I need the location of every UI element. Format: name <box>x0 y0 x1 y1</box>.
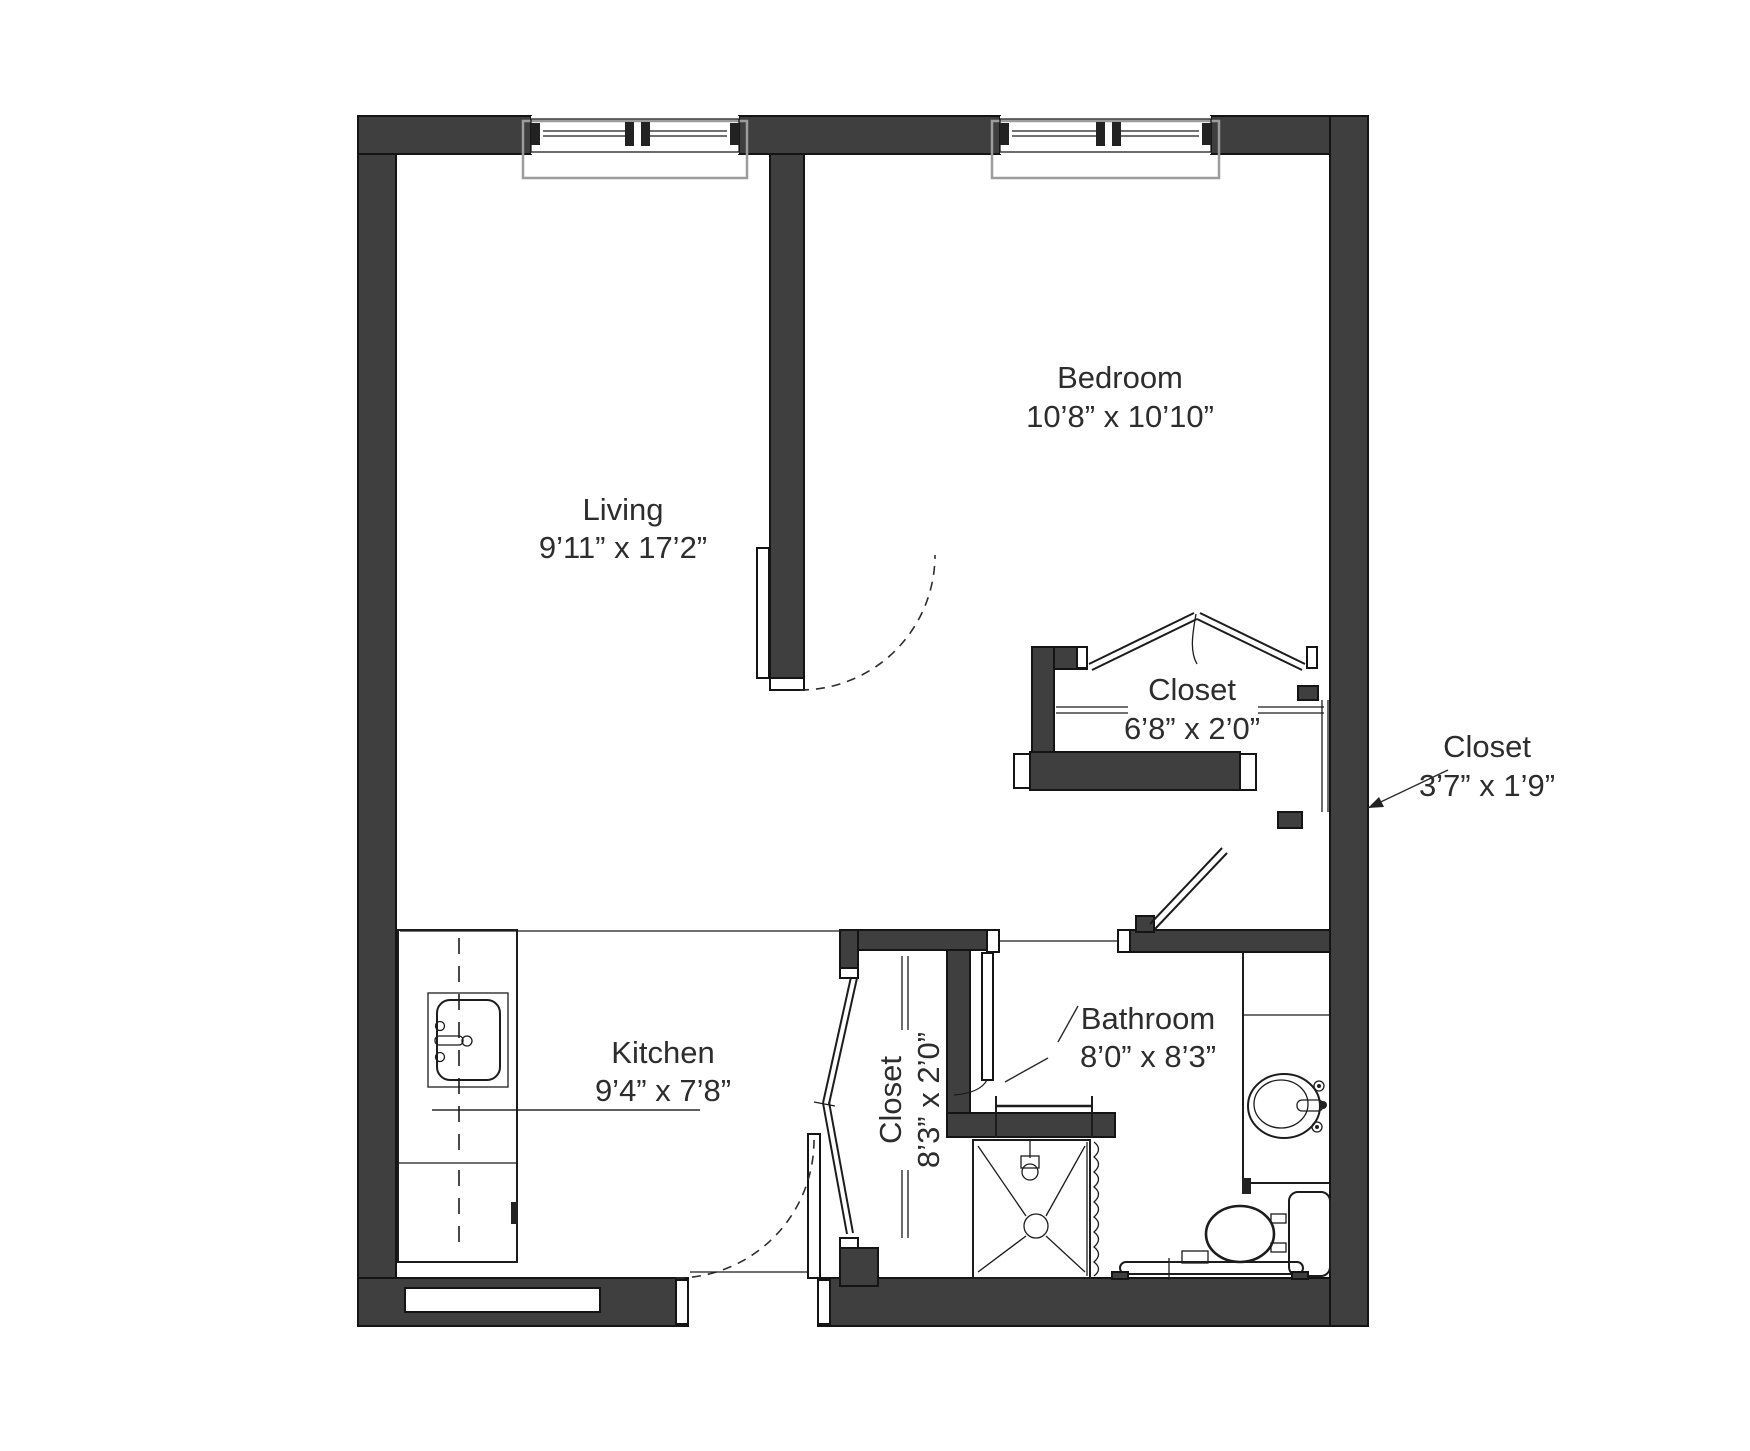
closet-wall-bottom <box>1030 752 1240 790</box>
bifold-center-mark <box>814 1102 835 1106</box>
bifold-cap-right <box>1307 647 1317 668</box>
kitchen-closet-label: Closet <box>873 1056 908 1144</box>
toilet-hinge <box>1271 1214 1286 1223</box>
entry-cap-right <box>818 1280 830 1324</box>
bathroom-leader <box>1005 1058 1048 1082</box>
vanity-corner <box>1242 1178 1251 1194</box>
wall-right <box>1330 116 1368 1326</box>
living-window <box>523 116 747 178</box>
window-post <box>531 123 540 145</box>
hall-closet-door <box>1155 853 1227 929</box>
closet-wall-cap-left <box>1014 754 1030 788</box>
fixtures <box>398 707 1330 1280</box>
living-dims: 9’11” x 17’2” <box>539 530 707 565</box>
partition-opening-trim <box>757 548 769 678</box>
counter-stop <box>511 1202 518 1224</box>
shower-x <box>1046 1146 1085 1216</box>
window-mullion <box>625 122 634 146</box>
kitchen-sink <box>428 993 508 1087</box>
entry-cap-left <box>676 1280 688 1324</box>
kitchen-closet-label-group: Closet 8’3” x 2’0” <box>873 1032 946 1168</box>
sink-rim <box>428 993 508 1087</box>
shower-pan <box>973 1140 1090 1278</box>
wall-top-b <box>739 116 1000 154</box>
window-mullion <box>1096 122 1105 146</box>
kitchen-closet-cap-bottom <box>840 1238 858 1248</box>
hall-closet-door <box>1150 848 1222 924</box>
wall-bottom-right <box>818 1278 1330 1326</box>
bathroom-label: Bathroom <box>1081 1001 1215 1036</box>
kitchen-label: Kitchen <box>611 1035 714 1070</box>
shower-curtain <box>1094 1142 1099 1276</box>
bifold-panel <box>1197 619 1302 670</box>
kitchen-closet-dims: 8’3” x 2’0” <box>911 1032 946 1168</box>
hall-closet-label: Closet <box>1443 729 1531 764</box>
window-post <box>1000 123 1009 145</box>
hall-closet-dims: 3’7” x 1’9” <box>1419 768 1555 803</box>
kitchen-closet-jamb-bottom <box>840 1248 878 1286</box>
bifold-panel <box>829 1102 853 1233</box>
toilet-bowl <box>1206 1206 1274 1262</box>
partition-end-cap <box>770 678 804 690</box>
bathroom-dims: 8’0” x 8’3” <box>1080 1039 1216 1074</box>
floor-plan: Living 9’11” x 17’2” Bedroom 10’8” x 10’… <box>0 0 1750 1451</box>
window-post <box>1202 123 1211 145</box>
bedroom-door-swing <box>800 555 935 690</box>
bathroom-door-leaf <box>982 953 993 1080</box>
vanity-sink-inner <box>1254 1080 1308 1128</box>
shower-x <box>1046 1236 1085 1272</box>
bath-door-cap-left <box>987 930 999 952</box>
toilet-tank <box>1289 1192 1330 1276</box>
vanity-faucet-base <box>1319 1101 1327 1109</box>
hall-closet-block-top <box>1298 686 1318 700</box>
window-post <box>730 123 739 145</box>
bath-door-cap-right <box>1118 930 1130 952</box>
wall-left <box>358 116 396 1326</box>
window-mullion <box>1112 122 1121 146</box>
shower-north-wall <box>947 1113 1115 1137</box>
living-label: Living <box>583 492 664 527</box>
bedroom-label: Bedroom <box>1057 360 1183 395</box>
grab-bar-foot <box>1292 1272 1308 1279</box>
sink-basin <box>437 1000 500 1080</box>
bifold-panel <box>823 977 851 1103</box>
vanity <box>1242 952 1330 1194</box>
bifold-panel <box>1200 613 1305 664</box>
shower-drain <box>1024 1214 1048 1238</box>
wall-top-a <box>358 116 531 154</box>
wall-recess <box>405 1288 600 1312</box>
bedroom-dims: 10’8” x 10’10” <box>1026 399 1214 434</box>
hall-closet-arrowhead <box>1368 797 1384 808</box>
bedroom-closet-label: Closet <box>1148 672 1236 707</box>
counter-outline <box>398 930 517 1262</box>
grab-bar <box>1120 1262 1303 1274</box>
shower-x <box>978 1146 1026 1216</box>
closet-wall-left <box>1032 647 1054 754</box>
leaders <box>1005 770 1448 1082</box>
bath-wall-left <box>840 930 987 950</box>
bifold-cap-left <box>1077 647 1087 668</box>
window-mullion <box>641 122 650 146</box>
bathroom-leader <box>1058 1006 1078 1042</box>
bath-wall-right <box>1130 930 1330 952</box>
floor-plan-svg: Living 9’11” x 17’2” Bedroom 10’8” x 10’… <box>0 0 1750 1451</box>
toilet <box>1206 1192 1330 1276</box>
bath-wall-t-vertical <box>947 930 970 1113</box>
wall-partition <box>770 154 804 678</box>
bifold-panel <box>823 1103 847 1234</box>
kitchen-closet-jamb-top <box>840 930 858 968</box>
toilet-hinge <box>1271 1243 1286 1252</box>
entry-door-swing <box>676 1140 814 1278</box>
closet-wall-cap-right <box>1240 754 1256 790</box>
bifold-panel <box>1092 619 1197 670</box>
kitchen-dims: 9’4” x 7’8” <box>595 1073 731 1108</box>
bedroom-closet-dims: 6’8” x 2’0” <box>1124 711 1260 746</box>
vanity-handle-dot <box>1317 1084 1321 1088</box>
bedroom-window <box>992 116 1219 178</box>
kitchen-closet-cap-top <box>840 968 858 978</box>
kitchen-counter <box>398 930 518 1262</box>
hall-closet-block-bottom <box>1278 812 1302 828</box>
grab-bar-south <box>1112 1251 1308 1280</box>
shower-x <box>978 1236 1026 1272</box>
bifold-panel <box>1089 613 1194 664</box>
grab-bar-foot <box>1112 1272 1128 1279</box>
bifold-panel <box>829 978 857 1104</box>
entry-door-leaf <box>808 1134 820 1278</box>
shower-head <box>1022 1164 1038 1180</box>
vanity-handle-dot <box>1315 1125 1319 1129</box>
